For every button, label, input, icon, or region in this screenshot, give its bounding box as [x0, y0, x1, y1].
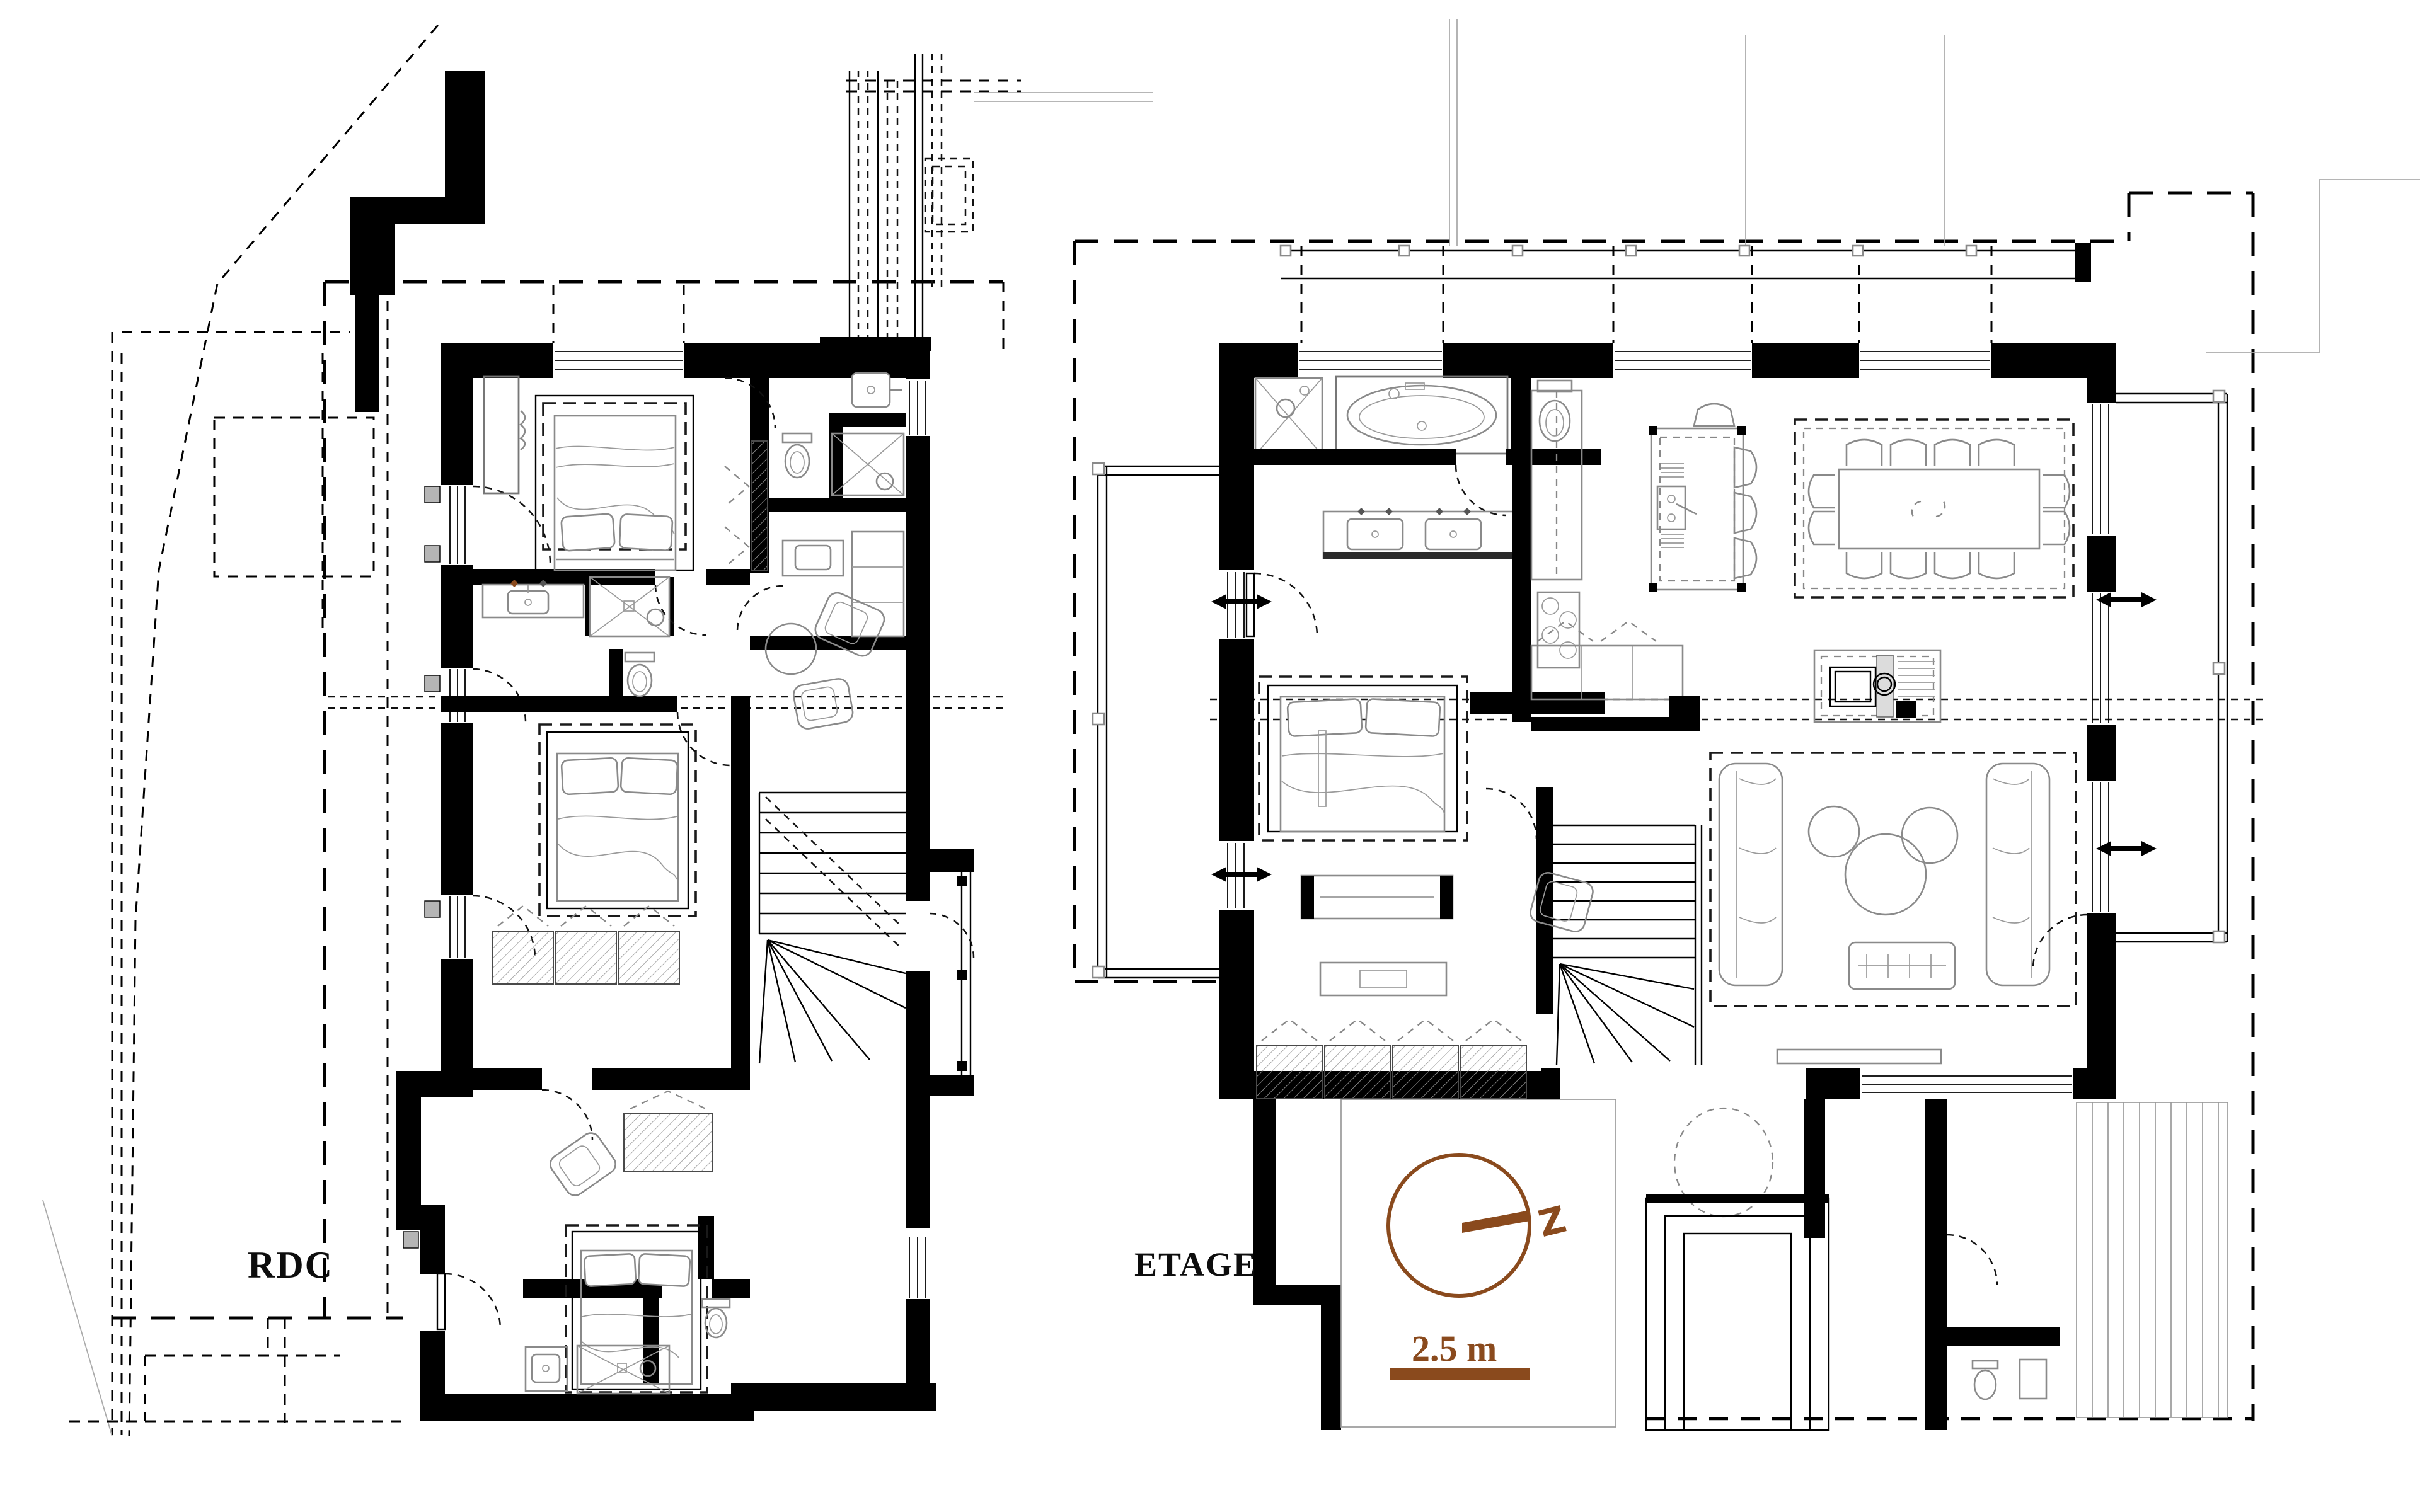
wardrobe-symbol: [624, 1114, 712, 1172]
window-sill: [425, 901, 440, 917]
wardrobe-symbol: [1257, 1046, 1322, 1099]
scale-bar-rule: [1390, 1368, 1530, 1380]
window-sill: [425, 675, 440, 692]
window-sill: [403, 1232, 418, 1248]
wardrobe-symbol: [1325, 1046, 1390, 1099]
wardrobe-symbol: [619, 931, 679, 984]
wardrobe-symbol: [1393, 1046, 1458, 1099]
wardrobe-symbol: [556, 931, 616, 984]
window-sill: [425, 486, 440, 503]
label-etage: ETAGE: [1134, 1246, 1257, 1283]
pillow: [621, 758, 678, 795]
dining-table-symbol: [1839, 469, 2039, 549]
pillow: [584, 1254, 636, 1286]
sink-symbol: [852, 373, 890, 407]
sink-symbol: [508, 591, 548, 614]
wardrobe-symbol: [1461, 1046, 1526, 1099]
label-rdc: RDC: [248, 1244, 333, 1286]
closet-symbol: [751, 441, 768, 571]
pillow: [561, 513, 615, 551]
sink-symbol: [532, 1354, 560, 1382]
window-sill: [425, 546, 440, 562]
wardrobe-symbol: [493, 931, 553, 984]
pillow: [619, 514, 673, 551]
scale-label: 2.5 m: [1412, 1328, 1497, 1369]
pillow: [638, 1254, 690, 1286]
pillow: [562, 758, 619, 795]
pillow: [1366, 699, 1441, 736]
chimney-wall: [445, 71, 485, 197]
drawing-sheet: RDC: [0, 0, 2420, 1512]
